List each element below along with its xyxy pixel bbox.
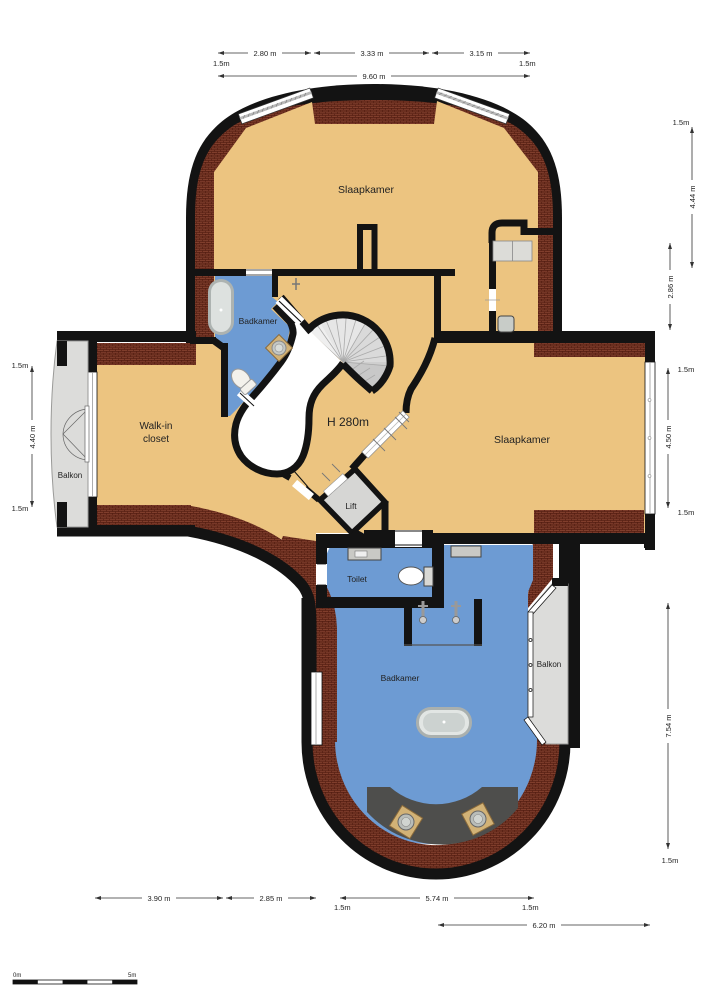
svg-text:9.60 m: 9.60 m [363, 72, 386, 81]
svg-text:Balkon: Balkon [537, 660, 561, 669]
svg-text:4.44 m: 4.44 m [688, 186, 697, 209]
svg-text:H 280m: H 280m [327, 415, 369, 429]
svg-text:1.5m: 1.5m [213, 59, 230, 68]
svg-text:6.20 m: 6.20 m [533, 921, 556, 930]
svg-text:Walk-in: Walk-in [140, 421, 173, 432]
svg-text:3.33 m: 3.33 m [361, 49, 384, 58]
svg-text:2.86 m: 2.86 m [666, 276, 675, 299]
svg-text:1.5m: 1.5m [519, 59, 536, 68]
svg-text:3.15 m: 3.15 m [470, 49, 493, 58]
svg-text:1.5m: 1.5m [678, 365, 695, 374]
svg-text:4.40 m: 4.40 m [28, 426, 37, 449]
svg-text:2.80 m: 2.80 m [254, 49, 277, 58]
svg-text:1.5m: 1.5m [678, 508, 695, 517]
svg-text:0m: 0m [13, 973, 21, 979]
svg-text:1.5m: 1.5m [12, 504, 29, 513]
svg-text:2.85 m: 2.85 m [260, 894, 283, 903]
svg-text:Balkon: Balkon [58, 471, 82, 480]
svg-text:5.74 m: 5.74 m [426, 894, 449, 903]
svg-text:1.5m: 1.5m [673, 118, 690, 127]
svg-text:Slaapkamer: Slaapkamer [338, 184, 395, 196]
svg-text:Slaapkamer: Slaapkamer [494, 434, 551, 446]
svg-text:Toilet: Toilet [347, 574, 367, 584]
svg-text:Badkamer: Badkamer [381, 673, 420, 683]
svg-text:Badkamer: Badkamer [239, 316, 278, 326]
svg-text:closet: closet [143, 434, 169, 445]
svg-text:1.5m: 1.5m [662, 856, 679, 865]
svg-text:5m: 5m [128, 973, 136, 979]
svg-text:Lift: Lift [345, 501, 357, 511]
svg-text:1.5m: 1.5m [522, 903, 539, 912]
svg-text:7.54 m: 7.54 m [664, 715, 673, 738]
svg-text:1.5m: 1.5m [334, 903, 351, 912]
svg-text:3.90 m: 3.90 m [148, 894, 171, 903]
svg-text:1.5m: 1.5m [12, 361, 29, 370]
svg-text:4.50 m: 4.50 m [664, 426, 673, 449]
